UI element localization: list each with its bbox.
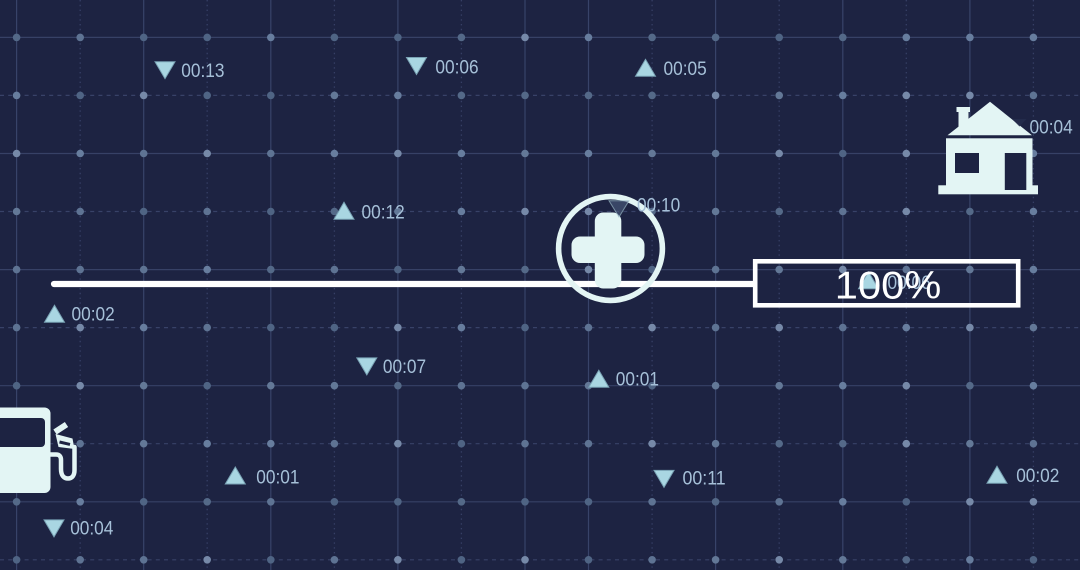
svg-text:00:04: 00:04 <box>1030 116 1073 138</box>
svg-text:00:02: 00:02 <box>72 303 115 325</box>
svg-text:00:11: 00:11 <box>683 468 726 490</box>
svg-text:00:02: 00:02 <box>1016 465 1059 487</box>
svg-text:00:07: 00:07 <box>383 356 426 378</box>
svg-text:00:01: 00:01 <box>256 467 299 489</box>
svg-text:00:01: 00:01 <box>616 369 659 391</box>
svg-text:00:06: 00:06 <box>435 56 478 78</box>
svg-text:00:05: 00:05 <box>664 58 707 80</box>
svg-text:00:12: 00:12 <box>362 202 405 224</box>
svg-text:100%: 100% <box>835 265 942 308</box>
svg-text:00:10: 00:10 <box>637 194 680 216</box>
svg-text:00:04: 00:04 <box>70 518 113 540</box>
svg-text:00:13: 00:13 <box>181 60 224 82</box>
